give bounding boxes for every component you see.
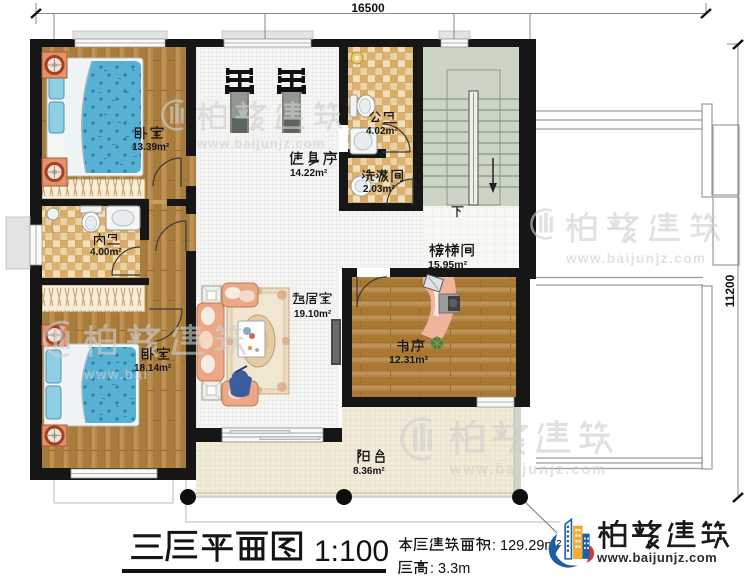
svg-text:4.00m²: 4.00m² bbox=[90, 247, 122, 258]
svg-text:1:100: 1:100 bbox=[314, 535, 389, 568]
svg-text:18.14m²: 18.14m² bbox=[134, 363, 172, 374]
svg-text:4.02m²: 4.02m² bbox=[366, 126, 398, 137]
svg-text:: 3.3m: : 3.3m bbox=[430, 561, 470, 577]
svg-text:19.10m²: 19.10m² bbox=[294, 309, 332, 320]
svg-text:14.22m²: 14.22m² bbox=[290, 168, 328, 179]
svg-text:13.39m²: 13.39m² bbox=[132, 142, 170, 153]
svg-text:2.03m²: 2.03m² bbox=[363, 184, 395, 195]
svg-text:16500: 16500 bbox=[351, 1, 385, 15]
svg-text:12.31m²: 12.31m² bbox=[389, 354, 429, 366]
svg-text:11200: 11200 bbox=[723, 274, 737, 307]
svg-text:www.baijunjz.com: www.baijunjz.com bbox=[565, 251, 707, 266]
svg-text:www.baijunjz.com: www.baijunjz.com bbox=[449, 462, 607, 478]
svg-text:15.95m²: 15.95m² bbox=[428, 259, 468, 271]
svg-text:www.baijunjz.com: www.baijunjz.com bbox=[596, 550, 717, 565]
svg-text:8.36m²: 8.36m² bbox=[353, 466, 385, 477]
svg-text:www.baijunjz.com: www.baijunjz.com bbox=[196, 136, 325, 151]
